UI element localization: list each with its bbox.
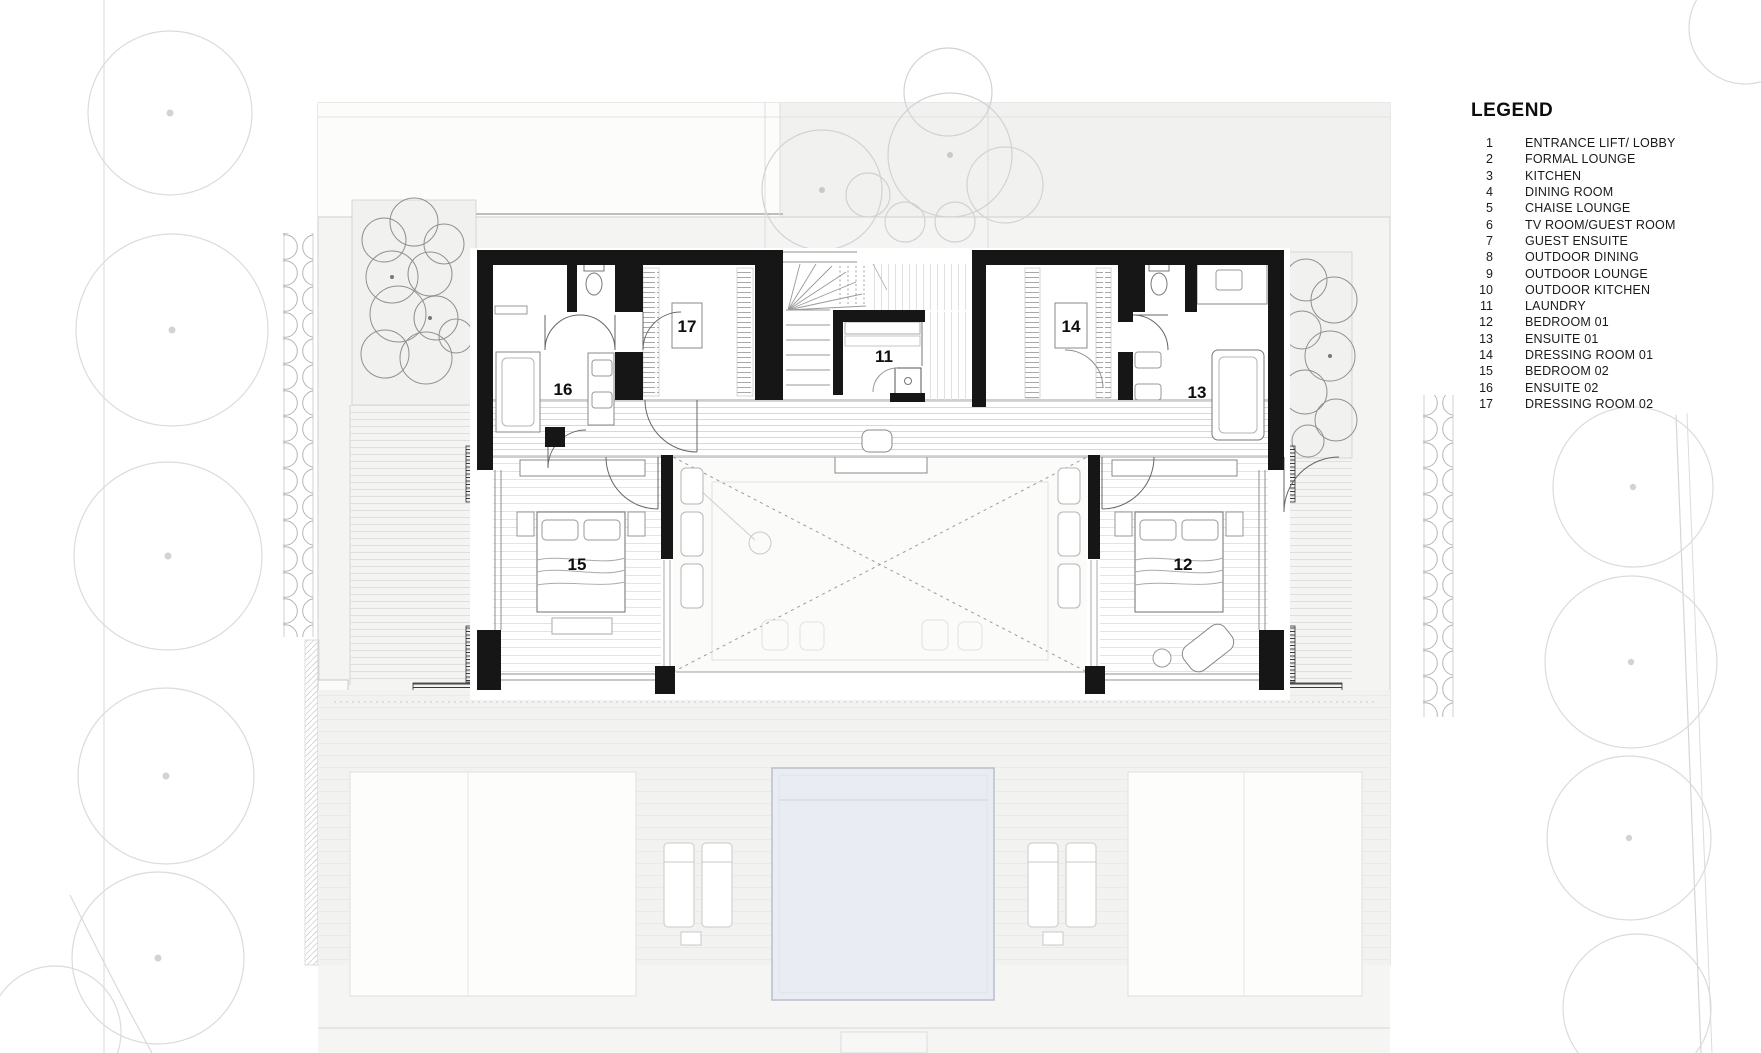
washing-machine	[895, 368, 921, 394]
legend-item-number: 12	[1471, 315, 1493, 329]
void-lightwell	[673, 430, 1087, 672]
room-label-17: 17	[678, 317, 697, 336]
terrace-step	[841, 1032, 927, 1053]
legend-row: 11LAUNDRY	[1471, 298, 1743, 314]
bedside-table	[517, 512, 534, 536]
legend-row: 8OUTDOOR DINING	[1471, 249, 1743, 265]
legend-item-label: FORMAL LOUNGE	[1525, 152, 1743, 166]
legend-item-label: GUEST ENSUITE	[1525, 234, 1743, 248]
bedside-table	[628, 512, 645, 536]
sun-lounger	[702, 843, 732, 927]
planter-left	[352, 198, 476, 405]
legend-item-label: OUTDOOR LOUNGE	[1525, 267, 1743, 281]
legend-item-number: 9	[1471, 267, 1493, 281]
toilet-bowl	[586, 273, 602, 295]
legend-item-number: 13	[1471, 332, 1493, 346]
legend-item-label: BEDROOM 01	[1525, 315, 1743, 329]
room-label-12: 12	[1174, 555, 1193, 574]
toilet-bowl	[1151, 273, 1167, 295]
room-label-14: 14	[1062, 317, 1081, 336]
legend-row: 7GUEST ENSUITE	[1471, 233, 1743, 249]
lounger-table	[1043, 932, 1063, 945]
legend-item-number: 6	[1471, 218, 1493, 232]
boundary-hatch-strip	[305, 640, 319, 965]
legend-row: 16ENSUITE 02	[1471, 379, 1743, 395]
legend-row: 13ENSUITE 01	[1471, 331, 1743, 347]
legend-row: 1ENTRANCE LIFT/ LOBBY	[1471, 135, 1743, 151]
legend-row: 2FORMAL LOUNGE	[1471, 151, 1743, 167]
bathtub	[1212, 350, 1264, 440]
legend-row: 5CHAISE LOUNGE	[1471, 200, 1743, 216]
bedside-table	[1115, 512, 1132, 536]
legend-item-label: BEDROOM 02	[1525, 364, 1743, 378]
legend-title: LEGEND	[1471, 100, 1743, 122]
pillow	[1182, 520, 1218, 540]
legend-row: 10OUTDOOR KITCHEN	[1471, 282, 1743, 298]
room-label-13: 13	[1188, 383, 1207, 402]
hedge-right	[1423, 395, 1453, 717]
wardrobe	[737, 268, 753, 396]
bridge-bench	[835, 457, 927, 473]
legend-item-label: ENSUITE 02	[1525, 381, 1743, 395]
legend-item-number: 5	[1471, 201, 1493, 215]
stair-landing	[873, 264, 972, 310]
legend-item-label: OUTDOOR KITCHEN	[1525, 283, 1743, 297]
wardrobe	[1025, 268, 1040, 398]
dresser	[1112, 460, 1237, 476]
legend-item-number: 14	[1471, 348, 1493, 362]
sun-lounger	[1028, 843, 1058, 927]
legend-item-label: KITCHEN	[1525, 169, 1743, 183]
legend-item-label: DRESSING ROOM 01	[1525, 348, 1743, 362]
room-label-16: 16	[554, 380, 573, 399]
deck-left	[350, 405, 477, 685]
legend-row: 4DINING ROOM	[1471, 184, 1743, 200]
legend-item-label: DRESSING ROOM 02	[1525, 397, 1743, 411]
legend-item-label: LAUNDRY	[1525, 299, 1743, 313]
legend-item-number: 7	[1471, 234, 1493, 248]
hedge-left	[283, 233, 313, 637]
legend-item-number: 10	[1471, 283, 1493, 297]
planter-box	[862, 430, 892, 452]
legend-row: 9OUTDOOR LOUNGE	[1471, 265, 1743, 281]
lounger-table	[681, 932, 701, 945]
legend-item-label: CHAISE LOUNGE	[1525, 201, 1743, 215]
legend-item-label: TV ROOM/GUEST ROOM	[1525, 218, 1743, 232]
legend-item-number: 2	[1471, 152, 1493, 166]
legend-item-number: 15	[1471, 364, 1493, 378]
legend-item-label: OUTDOOR DINING	[1525, 250, 1743, 264]
bathtub	[496, 352, 540, 432]
legend-item-number: 17	[1471, 397, 1493, 411]
legend-row: 3KITCHEN	[1471, 168, 1743, 184]
foot-bench	[552, 618, 612, 634]
legend-row: 15BEDROOM 02	[1471, 363, 1743, 379]
room-label-11: 11	[875, 347, 893, 366]
vanity-counter	[1197, 262, 1267, 304]
legend-row: 12BEDROOM 01	[1471, 314, 1743, 330]
laundry-corridor	[927, 312, 972, 400]
wardrobe	[1096, 268, 1111, 398]
legend-item-label: ENSUITE 01	[1525, 332, 1743, 346]
dresser	[520, 460, 645, 476]
planter-right	[1283, 252, 1357, 458]
legend-row: 6TV ROOM/GUEST ROOM	[1471, 216, 1743, 232]
pillow	[1140, 520, 1176, 540]
shelf	[495, 306, 527, 314]
side-table	[1153, 649, 1171, 667]
room-label-15: 15	[568, 555, 587, 574]
wardrobe	[643, 268, 659, 396]
legend-item-label: ENTRANCE LIFT/ LOBBY	[1525, 136, 1743, 150]
legend-item-number: 8	[1471, 250, 1493, 264]
legend-item-number: 16	[1471, 381, 1493, 395]
legend-item-number: 4	[1471, 185, 1493, 199]
legend-row: 17DRESSING ROOM 02	[1471, 396, 1743, 412]
legend-item-label: DINING ROOM	[1525, 185, 1743, 199]
bedside-table	[1226, 512, 1243, 536]
legend-item-number: 1	[1471, 136, 1493, 150]
legend-row: 14DRESSING ROOM 01	[1471, 347, 1743, 363]
floor-plan-page: { "legend": { "title": "LEGEND", "items"…	[0, 0, 1761, 1053]
legend-item-number: 3	[1471, 169, 1493, 183]
pillow	[542, 520, 578, 540]
pool	[772, 768, 994, 1000]
left-trees	[0, 31, 268, 1053]
legend-rows: 1ENTRANCE LIFT/ LOBBY 2FORMAL LOUNGE 3KI…	[1471, 135, 1743, 412]
sun-lounger	[1066, 843, 1096, 927]
legend-item-number: 11	[1471, 299, 1493, 313]
pillow	[584, 520, 620, 540]
legend: LEGEND 1ENTRANCE LIFT/ LOBBY 2FORMAL LOU…	[1471, 100, 1743, 412]
sun-lounger	[664, 843, 694, 927]
